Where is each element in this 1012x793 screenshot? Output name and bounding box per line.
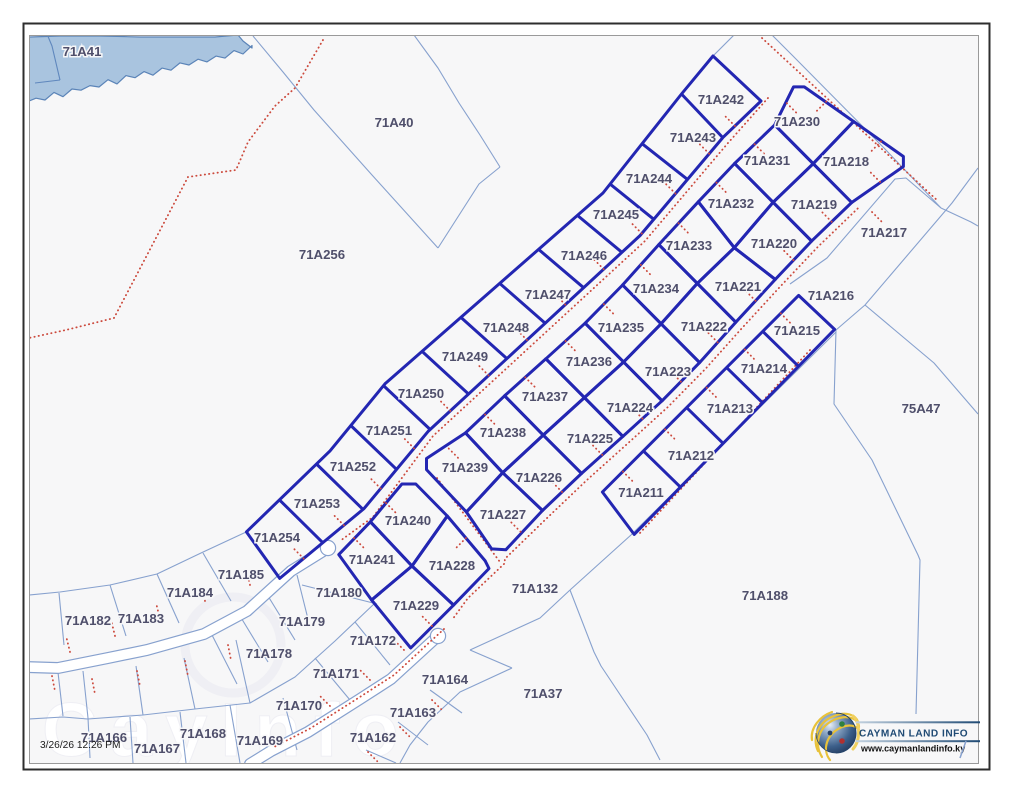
svg-text:71A250: 71A250 bbox=[398, 386, 444, 401]
svg-text:71A219: 71A219 bbox=[791, 197, 837, 212]
svg-text:71A241: 71A241 bbox=[349, 552, 395, 567]
svg-text:71A249: 71A249 bbox=[442, 349, 488, 364]
svg-text:71A223: 71A223 bbox=[645, 364, 691, 379]
svg-text:71A246: 71A246 bbox=[561, 248, 607, 263]
svg-text:71A248: 71A248 bbox=[483, 320, 529, 335]
svg-text:71A227: 71A227 bbox=[480, 507, 526, 522]
svg-text:71A239: 71A239 bbox=[442, 460, 488, 475]
svg-text:71A238: 71A238 bbox=[480, 425, 526, 440]
svg-text:71A180: 71A180 bbox=[316, 585, 362, 600]
svg-text:71A213: 71A213 bbox=[707, 401, 753, 416]
svg-text:CAYMAN LAND INFO: CAYMAN LAND INFO bbox=[859, 729, 968, 740]
svg-text:71A228: 71A228 bbox=[429, 558, 475, 573]
svg-text:71A212: 71A212 bbox=[668, 448, 714, 463]
svg-text:71A217: 71A217 bbox=[861, 225, 907, 240]
svg-text:71A230: 71A230 bbox=[774, 114, 820, 129]
svg-text:71A215: 71A215 bbox=[774, 323, 820, 338]
svg-text:71A233: 71A233 bbox=[666, 238, 712, 253]
svg-text:71A252: 71A252 bbox=[330, 459, 376, 474]
svg-text:71A234: 71A234 bbox=[633, 281, 680, 296]
svg-text:71A247: 71A247 bbox=[525, 287, 571, 302]
svg-text:71A182: 71A182 bbox=[65, 613, 111, 628]
svg-text:71A245: 71A245 bbox=[593, 207, 639, 222]
svg-text:71A251: 71A251 bbox=[366, 423, 412, 438]
svg-text:3/26/26 12:26 PM: 3/26/26 12:26 PM bbox=[40, 740, 120, 751]
svg-text:71A163: 71A163 bbox=[390, 705, 436, 720]
svg-text:71A226: 71A226 bbox=[516, 470, 562, 485]
svg-text:71A168: 71A168 bbox=[180, 726, 226, 741]
svg-text:71A170: 71A170 bbox=[276, 698, 322, 713]
svg-text:71A37: 71A37 bbox=[524, 686, 563, 701]
svg-text:71A231: 71A231 bbox=[744, 153, 790, 168]
svg-text:71A229: 71A229 bbox=[393, 598, 439, 613]
svg-text:71A41: 71A41 bbox=[63, 44, 102, 59]
svg-text:71A40: 71A40 bbox=[375, 115, 414, 130]
svg-text:71A225: 71A225 bbox=[567, 431, 613, 446]
svg-text:71A236: 71A236 bbox=[566, 354, 612, 369]
svg-text:71A240: 71A240 bbox=[385, 513, 431, 528]
svg-text:71A242: 71A242 bbox=[698, 92, 744, 107]
svg-text:71A171: 71A171 bbox=[313, 666, 359, 681]
svg-text:71A256: 71A256 bbox=[299, 247, 345, 262]
svg-text:71A221: 71A221 bbox=[715, 279, 761, 294]
svg-text:71A172: 71A172 bbox=[350, 633, 396, 648]
svg-text:75A47: 75A47 bbox=[902, 401, 941, 416]
svg-text:71A235: 71A235 bbox=[598, 320, 644, 335]
svg-text:71A244: 71A244 bbox=[626, 171, 673, 186]
svg-text:71A167: 71A167 bbox=[134, 741, 180, 756]
svg-text:71A184: 71A184 bbox=[167, 585, 214, 600]
svg-text:71A237: 71A237 bbox=[522, 389, 568, 404]
svg-text:71A253: 71A253 bbox=[294, 496, 340, 511]
svg-text:71A169: 71A169 bbox=[237, 733, 283, 748]
svg-text:71A179: 71A179 bbox=[279, 614, 325, 629]
svg-text:71A183: 71A183 bbox=[118, 611, 164, 626]
svg-text:71A232: 71A232 bbox=[708, 196, 754, 211]
svg-text:www.caymanlandinfo.ky: www.caymanlandinfo.ky bbox=[860, 744, 965, 754]
svg-text:71A254: 71A254 bbox=[254, 530, 301, 545]
svg-text:71A162: 71A162 bbox=[350, 730, 396, 745]
svg-text:71A214: 71A214 bbox=[741, 361, 788, 376]
svg-text:71A224: 71A224 bbox=[607, 400, 654, 415]
svg-text:71A188: 71A188 bbox=[742, 588, 788, 603]
svg-text:71A164: 71A164 bbox=[422, 672, 469, 687]
svg-text:71A216: 71A216 bbox=[808, 288, 854, 303]
svg-text:71A185: 71A185 bbox=[218, 567, 264, 582]
svg-text:71A218: 71A218 bbox=[823, 154, 869, 169]
svg-text:71A178: 71A178 bbox=[246, 646, 292, 661]
svg-text:71A220: 71A220 bbox=[751, 236, 797, 251]
svg-text:71A243: 71A243 bbox=[670, 130, 716, 145]
svg-text:71A132: 71A132 bbox=[512, 581, 558, 596]
svg-text:71A222: 71A222 bbox=[681, 319, 727, 334]
svg-text:71A211: 71A211 bbox=[618, 485, 663, 500]
